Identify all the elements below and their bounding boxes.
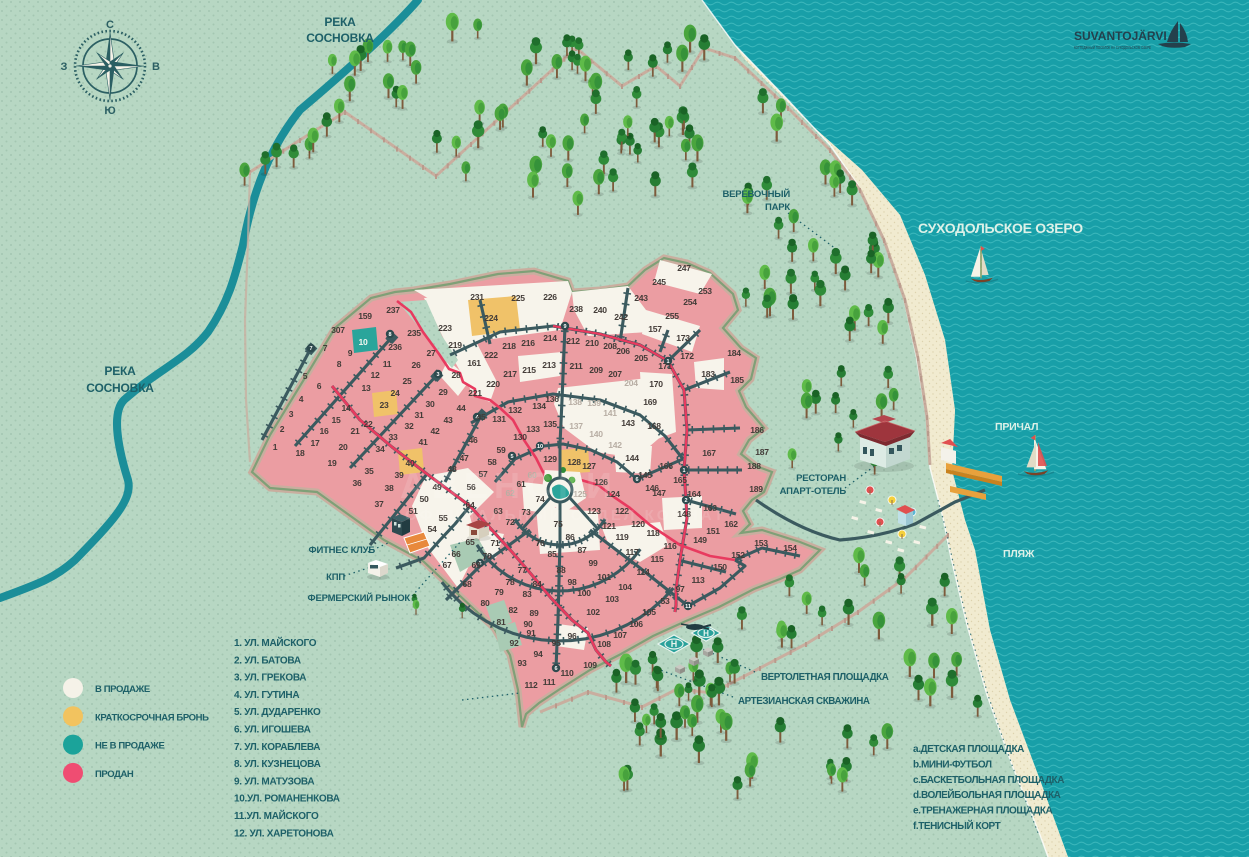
svg-text:164: 164 xyxy=(687,489,701,499)
svg-text:211: 211 xyxy=(570,361,583,371)
svg-text:217: 217 xyxy=(503,369,517,379)
svg-text:247: 247 xyxy=(677,263,691,273)
svg-text:131: 131 xyxy=(492,414,506,424)
svg-text:АВЕНСКИ: АВЕНСКИ xyxy=(400,465,618,506)
svg-text:13: 13 xyxy=(362,383,371,393)
svg-text:206: 206 xyxy=(616,346,630,356)
svg-text:34: 34 xyxy=(376,444,385,454)
svg-text:33: 33 xyxy=(389,432,398,442)
svg-text:111: 111 xyxy=(543,677,556,687)
svg-text:44: 44 xyxy=(457,403,466,413)
svg-text:115: 115 xyxy=(651,554,664,564)
svg-text:81: 81 xyxy=(497,617,506,627)
svg-text:f.ТЕНИСНЫЙ КОРТ: f.ТЕНИСНЫЙ КОРТ xyxy=(913,819,1001,832)
svg-text:112: 112 xyxy=(525,680,538,690)
svg-text:130: 130 xyxy=(513,432,527,442)
svg-text:235: 235 xyxy=(407,328,421,338)
svg-text:172: 172 xyxy=(680,351,694,361)
svg-text:16: 16 xyxy=(320,426,329,436)
svg-text:27: 27 xyxy=(427,348,436,358)
svg-text:АПАРТ-ОТЕЛЬ: АПАРТ-ОТЕЛЬ xyxy=(780,486,847,497)
svg-text:7: 7 xyxy=(309,346,312,352)
svg-text:216: 216 xyxy=(521,338,535,348)
svg-text:218: 218 xyxy=(502,341,516,351)
svg-text:69: 69 xyxy=(472,560,481,570)
svg-text:1. УЛ. МАЙСКОГО: 1. УЛ. МАЙСКОГО xyxy=(234,636,317,649)
svg-text:В ПРОДАЖЕ: В ПРОДАЖЕ xyxy=(95,684,150,695)
svg-text:9. УЛ. МАТУЗОВА: 9. УЛ. МАТУЗОВА xyxy=(234,776,314,787)
svg-text:4. УЛ. ГУТИНА: 4. УЛ. ГУТИНА xyxy=(234,690,299,701)
svg-text:ПЛЯЖ: ПЛЯЖ xyxy=(1003,548,1035,560)
svg-text:19: 19 xyxy=(328,458,337,468)
svg-text:129: 129 xyxy=(543,454,557,464)
svg-text:93: 93 xyxy=(518,658,527,668)
svg-text:236: 236 xyxy=(388,342,402,352)
svg-text:220: 220 xyxy=(486,379,500,389)
svg-text:53: 53 xyxy=(661,596,670,606)
svg-text:КРАТКОСРОЧНАЯ БРОНЬ: КРАТКОСРОЧНАЯ БРОНЬ xyxy=(95,712,209,723)
svg-text:166: 166 xyxy=(659,461,673,471)
svg-text:110: 110 xyxy=(561,668,574,678)
svg-text:3. УЛ. ГРЕКОВА: 3. УЛ. ГРЕКОВА xyxy=(234,673,306,684)
svg-text:ПРОДАН: ПРОДАН xyxy=(95,769,134,780)
svg-text:140: 140 xyxy=(589,429,603,439)
svg-text:108: 108 xyxy=(597,639,611,649)
svg-text:РЕСТОРАН: РЕСТОРАН xyxy=(796,473,846,484)
svg-text:215: 215 xyxy=(522,365,536,375)
svg-text:17: 17 xyxy=(311,438,320,448)
svg-text:11: 11 xyxy=(685,604,691,610)
svg-text:238: 238 xyxy=(569,304,583,314)
svg-text:26: 26 xyxy=(412,360,421,370)
svg-text:a.ДЕТСКАЯ ПЛОЩАДКА: a.ДЕТСКАЯ ПЛОЩАДКА xyxy=(913,744,1024,755)
svg-text:42: 42 xyxy=(431,426,440,436)
svg-text:97: 97 xyxy=(676,584,685,594)
svg-text:212: 212 xyxy=(566,336,580,346)
svg-text:АРТЕЗИАНСКАЯ СКВАЖИНА: АРТЕЗИАНСКАЯ СКВАЖИНА xyxy=(738,696,870,707)
svg-text:1: 1 xyxy=(682,468,685,474)
svg-text:23: 23 xyxy=(380,400,389,410)
svg-text:106: 106 xyxy=(629,619,643,629)
svg-text:138: 138 xyxy=(568,397,582,407)
svg-text:КПП: КПП xyxy=(326,572,345,583)
svg-text:96: 96 xyxy=(568,631,577,641)
svg-text:113: 113 xyxy=(692,575,705,585)
svg-text:237: 237 xyxy=(386,305,400,315)
svg-text:8: 8 xyxy=(388,332,391,338)
svg-text:7. УЛ. КОРАБЛЕВА: 7. УЛ. КОРАБЛЕВА xyxy=(234,742,320,753)
svg-text:ПРИЧАЛ: ПРИЧАЛ xyxy=(995,421,1038,433)
svg-text:8: 8 xyxy=(337,359,342,369)
svg-text:ВЕРЕВОЧНЫЙ: ВЕРЕВОЧНЫЙ xyxy=(722,188,790,200)
svg-text:204: 204 xyxy=(624,378,638,388)
svg-text:12: 12 xyxy=(371,370,380,380)
svg-text:102: 102 xyxy=(586,607,600,617)
svg-text:b.МИНИ-ФУТБОЛ: b.МИНИ-ФУТБОЛ xyxy=(913,759,992,770)
svg-text:86: 86 xyxy=(566,532,575,542)
svg-text:145: 145 xyxy=(638,470,652,480)
svg-text:H: H xyxy=(703,629,709,638)
svg-text:214: 214 xyxy=(543,333,557,343)
svg-text:47: 47 xyxy=(460,453,469,463)
svg-text:38: 38 xyxy=(385,483,394,493)
svg-text:22: 22 xyxy=(364,419,373,429)
svg-text:67: 67 xyxy=(443,560,452,570)
svg-text:159: 159 xyxy=(358,311,372,321)
svg-text:H: H xyxy=(671,639,678,649)
svg-text:77: 77 xyxy=(518,565,527,575)
svg-text:92: 92 xyxy=(510,638,519,648)
svg-text:135: 135 xyxy=(543,419,557,429)
svg-text:144: 144 xyxy=(625,453,639,463)
svg-text:101: 101 xyxy=(597,572,611,582)
svg-text:15: 15 xyxy=(332,415,341,425)
svg-text:ОФИЦИАЛЬНЫЙ ОТДЕЛ КОМНАТ: ОФИЦИАЛЬНЫЙ ОТДЕЛ КОМНАТ xyxy=(405,506,726,524)
svg-text:10.УЛ. РОМАНЕНКОВА: 10.УЛ. РОМАНЕНКОВА xyxy=(234,794,340,805)
svg-text:20: 20 xyxy=(339,442,348,452)
svg-text:116: 116 xyxy=(664,541,677,551)
svg-text:141: 141 xyxy=(603,408,617,418)
svg-text:С: С xyxy=(106,19,114,31)
svg-text:188: 188 xyxy=(747,461,761,471)
svg-text:143: 143 xyxy=(621,418,635,428)
svg-text:153: 153 xyxy=(754,538,768,548)
svg-text:14: 14 xyxy=(342,403,351,413)
svg-text:186: 186 xyxy=(750,425,764,435)
svg-text:10: 10 xyxy=(537,444,543,450)
svg-text:6: 6 xyxy=(554,666,557,672)
svg-text:3: 3 xyxy=(289,409,294,419)
svg-text:11: 11 xyxy=(383,359,392,369)
svg-text:РЕКА: РЕКА xyxy=(324,15,356,29)
svg-text:12. УЛ. ХАРЕТОНОВА: 12. УЛ. ХАРЕТОНОВА xyxy=(234,828,334,839)
svg-text:ФЕРМЕРСКИЙ РЫНОК: ФЕРМЕРСКИЙ РЫНОК xyxy=(308,592,411,604)
svg-text:6: 6 xyxy=(317,381,322,391)
svg-text:68: 68 xyxy=(463,579,472,589)
svg-text:c.БАСКЕТБОЛЬНАЯ ПЛОЩАДКА: c.БАСКЕТБОЛЬНАЯ ПЛОЩАДКА xyxy=(913,775,1064,786)
svg-text:225: 225 xyxy=(511,293,525,303)
svg-text:10: 10 xyxy=(359,337,368,347)
svg-text:88: 88 xyxy=(557,565,566,575)
svg-text:32: 32 xyxy=(405,421,414,431)
svg-text:2. УЛ. БАТОВА: 2. УЛ. БАТОВА xyxy=(234,655,301,666)
svg-text:157: 157 xyxy=(648,324,662,334)
svg-text:219: 219 xyxy=(448,340,462,350)
svg-text:117: 117 xyxy=(626,547,639,557)
svg-text:242: 242 xyxy=(614,312,628,322)
svg-text:2: 2 xyxy=(684,498,687,504)
svg-text:5. УЛ. ДУДАРЕНКО: 5. УЛ. ДУДАРЕНКО xyxy=(234,707,321,718)
svg-text:107: 107 xyxy=(613,630,627,640)
svg-text:171: 171 xyxy=(658,361,672,371)
svg-text:136: 136 xyxy=(545,394,559,404)
svg-text:105: 105 xyxy=(642,607,656,617)
svg-text:119: 119 xyxy=(616,532,629,542)
svg-text:З: З xyxy=(61,61,68,73)
svg-text:154: 154 xyxy=(783,543,797,553)
svg-text:209: 209 xyxy=(589,365,603,375)
svg-text:307: 307 xyxy=(331,325,345,335)
svg-text:54: 54 xyxy=(428,524,437,534)
svg-text:85: 85 xyxy=(548,549,557,559)
svg-text:94: 94 xyxy=(534,649,543,659)
svg-text:ФИТНЕС КЛУБ: ФИТНЕС КЛУБ xyxy=(309,545,376,556)
svg-text:226: 226 xyxy=(543,292,557,302)
svg-text:149: 149 xyxy=(693,535,707,545)
svg-text:134: 134 xyxy=(532,401,546,411)
svg-text:173: 173 xyxy=(676,333,690,343)
svg-text:137: 137 xyxy=(569,421,583,431)
svg-text:168: 168 xyxy=(647,421,661,431)
svg-text:142: 142 xyxy=(608,440,622,450)
svg-text:223: 223 xyxy=(438,323,452,333)
svg-text:205: 205 xyxy=(634,353,648,363)
svg-text:231: 231 xyxy=(470,292,484,302)
svg-text:78: 78 xyxy=(506,577,515,587)
svg-text:3: 3 xyxy=(436,372,439,378)
svg-text:37: 37 xyxy=(375,499,384,509)
svg-text:СОСНОВКА: СОСНОВКА xyxy=(306,31,374,45)
svg-text:213: 213 xyxy=(542,360,556,370)
svg-text:222: 222 xyxy=(484,350,498,360)
svg-text:224: 224 xyxy=(484,313,498,323)
svg-text:189: 189 xyxy=(749,484,763,494)
svg-text:103: 103 xyxy=(605,594,619,604)
svg-text:185: 185 xyxy=(730,375,744,385)
svg-text:6. УЛ. ИГОШЕВА: 6. УЛ. ИГОШЕВА xyxy=(234,725,311,736)
svg-text:ПАРК: ПАРК xyxy=(765,202,790,213)
svg-text:208: 208 xyxy=(603,341,617,351)
svg-text:132: 132 xyxy=(508,405,522,415)
svg-text:31: 31 xyxy=(415,410,424,420)
svg-text:СУХОДОЛЬСКОЕ ОЗЕРО: СУХОДОЛЬСКОЕ ОЗЕРО xyxy=(918,220,1083,236)
svg-text:183: 183 xyxy=(701,369,715,379)
svg-text:147: 147 xyxy=(652,488,666,498)
svg-text:9: 9 xyxy=(563,324,566,330)
svg-text:152: 152 xyxy=(731,550,745,560)
svg-text:150: 150 xyxy=(713,562,727,572)
svg-text:41: 41 xyxy=(419,437,428,447)
svg-text:167: 167 xyxy=(702,448,716,458)
svg-text:70: 70 xyxy=(483,551,492,561)
svg-text:e.ТРЕНАЖЕРНАЯ ПЛОЩАДКА: e.ТРЕНАЖЕРНАЯ ПЛОЩАДКА xyxy=(913,806,1053,817)
svg-text:21: 21 xyxy=(351,426,360,436)
svg-text:109: 109 xyxy=(583,660,597,670)
svg-text:240: 240 xyxy=(593,305,607,315)
svg-text:76: 76 xyxy=(536,538,545,548)
svg-text:99: 99 xyxy=(589,558,598,568)
svg-text:91: 91 xyxy=(527,628,536,638)
svg-text:210: 210 xyxy=(585,338,599,348)
svg-text:28: 28 xyxy=(452,370,461,380)
svg-text:1: 1 xyxy=(273,442,278,452)
svg-text:РЕКА: РЕКА xyxy=(104,364,136,378)
svg-text:207: 207 xyxy=(608,369,622,379)
svg-text:18: 18 xyxy=(296,448,305,458)
svg-text:139: 139 xyxy=(587,398,601,408)
svg-text:87: 87 xyxy=(578,545,587,555)
svg-text:8. УЛ. КУЗНЕЦОВА: 8. УЛ. КУЗНЕЦОВА xyxy=(234,759,321,770)
svg-text:133: 133 xyxy=(526,424,540,434)
svg-text:114: 114 xyxy=(637,567,650,577)
svg-text:46: 46 xyxy=(469,435,478,445)
svg-text:5: 5 xyxy=(510,454,513,460)
svg-text:89: 89 xyxy=(530,608,539,618)
svg-text:СОСНОВКА: СОСНОВКА xyxy=(86,381,154,395)
svg-text:25: 25 xyxy=(403,376,412,386)
svg-text:5: 5 xyxy=(303,371,308,381)
svg-text:83: 83 xyxy=(523,589,532,599)
svg-text:151: 151 xyxy=(706,526,720,536)
svg-text:104: 104 xyxy=(618,582,632,592)
svg-text:В: В xyxy=(152,61,160,73)
svg-text:100: 100 xyxy=(577,588,591,598)
svg-text:118: 118 xyxy=(647,528,660,538)
svg-text:221: 221 xyxy=(468,388,482,398)
svg-text:7: 7 xyxy=(323,343,328,353)
svg-text:2: 2 xyxy=(280,424,285,434)
svg-text:30: 30 xyxy=(426,399,435,409)
svg-text:71: 71 xyxy=(491,538,500,548)
svg-text:187: 187 xyxy=(755,447,769,457)
svg-text:82: 82 xyxy=(509,605,518,615)
svg-text:162: 162 xyxy=(724,519,738,529)
svg-text:36: 36 xyxy=(353,478,362,488)
svg-text:11.УЛ. МАЙСКОГО: 11.УЛ. МАЙСКОГО xyxy=(234,809,319,822)
svg-text:35: 35 xyxy=(365,466,374,476)
svg-text:59: 59 xyxy=(497,445,506,455)
svg-text:29: 29 xyxy=(439,387,448,397)
svg-text:253: 253 xyxy=(698,286,712,296)
svg-text:254: 254 xyxy=(683,297,697,307)
svg-text:165: 165 xyxy=(673,475,687,485)
svg-text:SUVANTOJÄRVI: SUVANTOJÄRVI xyxy=(1074,28,1167,43)
svg-text:9: 9 xyxy=(348,348,353,358)
svg-text:ВЕРТОЛЕТНАЯ ПЛОЩАДКА: ВЕРТОЛЕТНАЯ ПЛОЩАДКА xyxy=(761,672,889,683)
svg-text:255: 255 xyxy=(665,311,679,321)
svg-text:95: 95 xyxy=(552,638,561,648)
svg-text:161: 161 xyxy=(467,358,481,368)
svg-text:184: 184 xyxy=(727,348,741,358)
svg-text:КОТТЕДЖНЫЙ ПОСЕЛОК НА СУХОДОЛЬ: КОТТЕДЖНЫЙ ПОСЕЛОК НА СУХОДОЛЬСКОМ ОЗЕРЕ xyxy=(1074,43,1151,50)
svg-text:243: 243 xyxy=(634,293,648,303)
svg-text:84: 84 xyxy=(533,579,542,589)
svg-text:245: 245 xyxy=(652,277,666,287)
svg-text:Ю: Ю xyxy=(104,105,115,117)
svg-text:170: 170 xyxy=(649,379,663,389)
svg-text:4: 4 xyxy=(299,394,304,404)
svg-text:79: 79 xyxy=(495,587,504,597)
svg-text:80: 80 xyxy=(481,598,490,608)
svg-text:НЕ В ПРОДАЖЕ: НЕ В ПРОДАЖЕ xyxy=(95,741,164,752)
svg-text:24: 24 xyxy=(391,388,400,398)
svg-text:45: 45 xyxy=(477,412,486,422)
svg-text:d.ВОЛЕЙБОЛЬНАЯ ПЛОЩАДКА: d.ВОЛЕЙБОЛЬНАЯ ПЛОЩАДКА xyxy=(913,788,1061,801)
svg-text:43: 43 xyxy=(444,415,453,425)
svg-text:98: 98 xyxy=(568,577,577,587)
svg-text:169: 169 xyxy=(643,397,657,407)
